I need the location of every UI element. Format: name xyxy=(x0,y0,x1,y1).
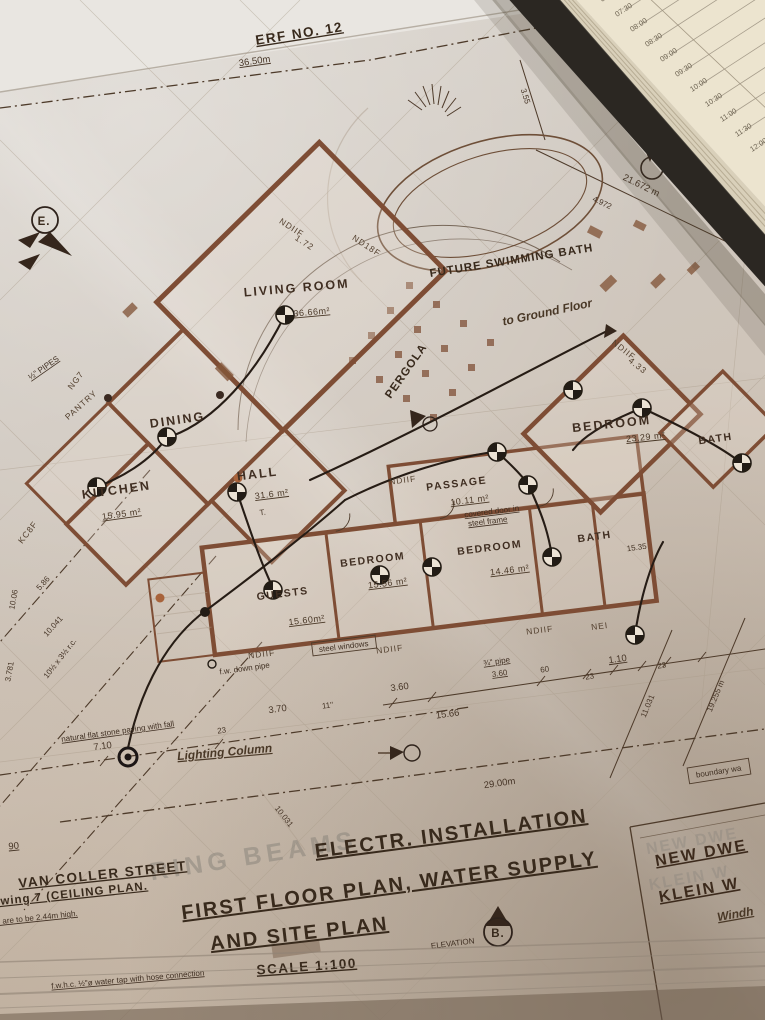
code-ndiif-d: NDIIF xyxy=(376,642,404,655)
note-pipe34: ¾" pipe xyxy=(483,655,511,668)
dim-3-60b: 3.60 xyxy=(491,668,508,679)
note-ground-floor: to Ground Floor xyxy=(501,295,595,328)
dim-3-70: 3.70 xyxy=(268,703,288,716)
dim-3-60a: 3.60 xyxy=(390,681,410,694)
dim-1-10: 1.10 xyxy=(608,653,628,666)
wire-arrowhead xyxy=(604,324,617,338)
elevation-marker-e: E. xyxy=(32,207,72,256)
note-downpipe: f.w. down pipe xyxy=(219,660,271,676)
dim-23c: 23 xyxy=(217,725,228,735)
dim-29-00: 29.00m xyxy=(483,776,516,791)
dim-19-255: 19.255 m xyxy=(705,679,726,714)
table-corner xyxy=(0,0,548,92)
left-edge-markers xyxy=(18,232,40,270)
dim-60: 60 xyxy=(540,664,551,674)
note-pipes: ½" PIPES xyxy=(27,354,61,382)
dim-10-06: 10.06 xyxy=(7,588,19,610)
lighting-column-symbol xyxy=(119,748,137,766)
photo-of-blueprint: E. LIVING ROOM 36.66m² DINING KITCHEN 15… xyxy=(0,0,765,1020)
code-nei: NEI xyxy=(591,620,609,632)
note-rc-beam: 10½ x 3½ r.c. xyxy=(42,637,79,680)
dim-23a: 23 xyxy=(585,671,596,681)
title-block: ELECTR. INSTALLATION FIRST FLOOR PLAN, W… xyxy=(0,805,598,990)
dim-4-972: 4.972 xyxy=(591,194,613,211)
note-wall-height: 8 are to be 2.44m high. xyxy=(0,909,78,927)
dim-11-031: 11.031 xyxy=(639,693,657,719)
marker-e-label: E. xyxy=(38,216,51,228)
code-ndiif-e: NDIIF xyxy=(526,623,554,636)
code-ng7: NG7 xyxy=(65,369,85,391)
dim-3-781: 3.781 xyxy=(3,660,15,682)
dim-10-031: 10.031 xyxy=(273,804,295,829)
dim-10-041: 10.041 xyxy=(42,614,65,639)
block-windhoek: Windh xyxy=(716,904,754,924)
open-diary: 07:00 07:30 08:00 08:30 09:00 09:30 10:0… xyxy=(470,0,765,362)
section-marker-a xyxy=(378,745,420,761)
dim-3-55: 3.55 xyxy=(519,87,533,105)
note-lighting-column: Lighting Column xyxy=(177,741,273,763)
dim-11in: 11'' xyxy=(321,700,334,711)
code-kc8f: KC8F xyxy=(16,519,40,545)
dim-5-86: 5.86 xyxy=(35,574,52,592)
dim-15-66: 15.66 xyxy=(435,707,460,721)
blueprint-scene: E. LIVING ROOM 36.66m² DINING KITCHEN 15… xyxy=(0,0,765,1020)
dim-7-10: 7.10 xyxy=(93,740,113,753)
dim-90: 90 xyxy=(8,840,20,852)
code-ndiif-c: NDIIF xyxy=(248,647,276,660)
label-swimming-bath: FUTURE SWIMMING BATH xyxy=(429,242,594,280)
elevation-b-arrow xyxy=(486,906,510,926)
note-paving: natural flat stone paving with fall xyxy=(61,719,175,744)
dim-36-50: 36.50m xyxy=(238,54,271,69)
note-t-symbol: T. xyxy=(259,508,266,518)
dim-23b: 23 xyxy=(657,660,668,670)
boundary-ticks xyxy=(408,84,461,116)
marker-b-label: B. xyxy=(491,928,505,940)
